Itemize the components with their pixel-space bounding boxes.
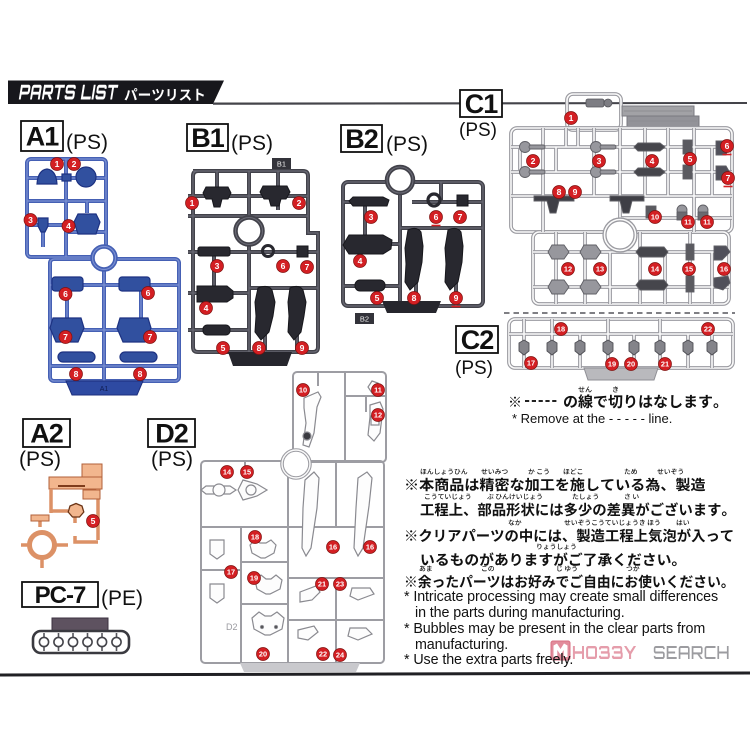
svg-text:1: 1 — [569, 113, 574, 123]
svg-text:7: 7 — [726, 173, 731, 183]
svg-text:3: 3 — [369, 212, 374, 222]
svg-text:17: 17 — [527, 359, 535, 368]
svg-text:5: 5 — [375, 293, 380, 303]
svg-text:2: 2 — [531, 156, 536, 166]
svg-text:8: 8 — [557, 187, 562, 197]
svg-text:2: 2 — [297, 198, 302, 208]
svg-text:8: 8 — [138, 369, 143, 379]
svg-text:10: 10 — [651, 213, 659, 222]
svg-text:(PS): (PS) — [455, 358, 493, 379]
svg-text:12: 12 — [564, 265, 572, 274]
svg-text:22: 22 — [704, 325, 712, 334]
svg-text:22: 22 — [319, 650, 327, 659]
svg-text:* Bubbles may be present in th: * Bubbles may be present in the clear pa… — [404, 621, 705, 637]
svg-text:14: 14 — [651, 265, 660, 274]
svg-text:18: 18 — [251, 533, 259, 542]
svg-text:12: 12 — [374, 411, 382, 420]
svg-text:9: 9 — [573, 187, 578, 197]
svg-text:* Intricate processing may cre: * Intricate processing may create small … — [404, 589, 718, 605]
svg-text:C1: C1 — [465, 89, 498, 119]
svg-text:11: 11 — [374, 386, 382, 395]
svg-text:3: 3 — [215, 261, 220, 271]
svg-text:A1: A1 — [26, 122, 59, 152]
svg-text:C2: C2 — [461, 325, 494, 355]
svg-text:11: 11 — [684, 218, 692, 227]
svg-text:21: 21 — [661, 360, 669, 369]
svg-text:in the parts during manufactur: in the parts during manufacturing. — [415, 605, 625, 621]
svg-text:5: 5 — [221, 343, 226, 353]
svg-text:* Remove at the - - - - - line: * Remove at the - - - - - line. — [512, 411, 672, 426]
svg-text:8: 8 — [257, 343, 262, 353]
svg-text:* Use the extra parts freely.: * Use the extra parts freely. — [404, 652, 573, 668]
svg-text:1: 1 — [190, 198, 195, 208]
svg-text:4: 4 — [66, 221, 71, 231]
svg-text:10: 10 — [299, 386, 307, 395]
svg-text:7: 7 — [305, 262, 310, 272]
svg-text:3: 3 — [597, 156, 602, 166]
svg-text:19: 19 — [250, 574, 258, 583]
svg-text:(PS): (PS) — [231, 132, 273, 155]
svg-text:13: 13 — [596, 265, 604, 274]
svg-text:D2: D2 — [226, 622, 238, 632]
svg-text:5: 5 — [688, 154, 693, 164]
svg-text:15: 15 — [685, 265, 693, 274]
svg-text:24: 24 — [336, 651, 345, 660]
svg-text:23: 23 — [336, 580, 344, 589]
svg-text:4: 4 — [650, 156, 655, 166]
svg-text:9: 9 — [300, 343, 305, 353]
svg-text:8: 8 — [74, 369, 79, 379]
svg-text:9: 9 — [454, 293, 459, 303]
svg-text:A1: A1 — [100, 386, 109, 393]
svg-text:4: 4 — [204, 303, 209, 313]
svg-text:2: 2 — [72, 159, 77, 169]
svg-text:B1: B1 — [191, 123, 224, 153]
svg-text:B1: B1 — [277, 160, 286, 169]
svg-text:6: 6 — [434, 212, 439, 222]
svg-text:B2: B2 — [345, 124, 378, 154]
svg-text:(PS): (PS) — [386, 133, 428, 156]
svg-text:7: 7 — [458, 212, 463, 222]
svg-text:6: 6 — [146, 288, 151, 298]
svg-text:manufacturing.: manufacturing. — [415, 637, 508, 653]
svg-text:6: 6 — [725, 141, 730, 151]
svg-text:D2: D2 — [155, 419, 188, 449]
svg-text:6: 6 — [281, 261, 286, 271]
svg-text:16: 16 — [720, 265, 728, 274]
svg-text:7: 7 — [63, 332, 68, 342]
svg-text:5: 5 — [91, 516, 96, 526]
svg-text:18: 18 — [557, 325, 565, 334]
svg-text:15: 15 — [243, 468, 251, 477]
svg-text:16: 16 — [366, 543, 374, 552]
svg-text:PC-7: PC-7 — [35, 582, 86, 609]
svg-text:20: 20 — [259, 650, 267, 659]
svg-text:3: 3 — [28, 215, 33, 225]
svg-text:(PE): (PE) — [101, 587, 143, 610]
svg-text:14: 14 — [223, 468, 232, 477]
svg-text:16: 16 — [329, 543, 337, 552]
svg-text:6: 6 — [63, 289, 68, 299]
svg-text:(PS): (PS) — [66, 131, 108, 154]
svg-text:A2: A2 — [30, 419, 63, 449]
svg-text:20: 20 — [627, 360, 635, 369]
svg-text:B2: B2 — [360, 315, 369, 324]
svg-text:11: 11 — [703, 218, 711, 227]
svg-text:8: 8 — [412, 293, 417, 303]
svg-text:4: 4 — [358, 256, 363, 266]
svg-text:19: 19 — [608, 360, 616, 369]
svg-text:7: 7 — [148, 332, 153, 342]
svg-text:(PS): (PS) — [151, 448, 193, 471]
svg-text:21: 21 — [318, 580, 326, 589]
svg-text:(PS): (PS) — [459, 120, 497, 141]
svg-text:1: 1 — [55, 159, 60, 169]
svg-text:17: 17 — [227, 568, 235, 577]
svg-text:(PS): (PS) — [19, 448, 61, 471]
